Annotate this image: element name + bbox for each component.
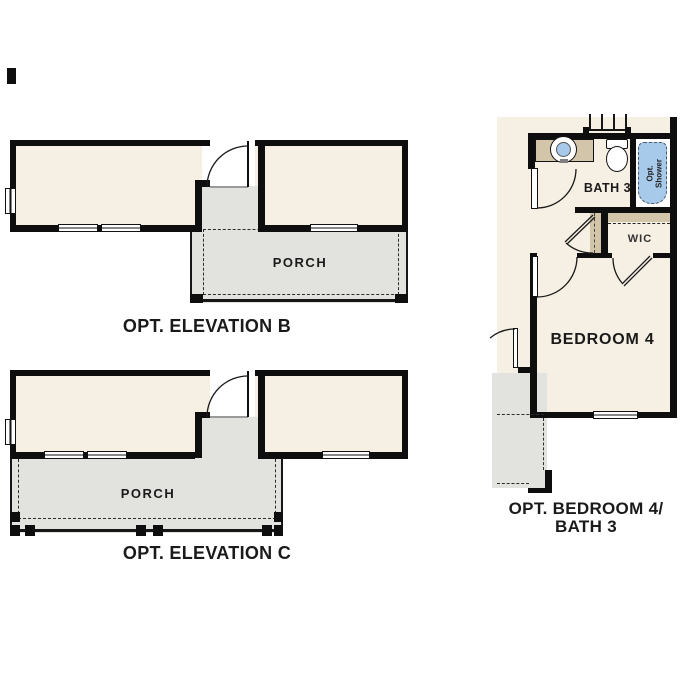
bedroom-window [593, 411, 638, 419]
floorplan-options-sheet: PORCH OPT. ELEVATION B PORCH OPT. ELEVAT… [0, 0, 687, 687]
elevation-b-recess-step-wall [195, 180, 210, 187]
bedroom-label: BEDROOM 4 [535, 331, 670, 349]
bedroom-top-wall-east [653, 253, 677, 258]
elevation-b-right-wall [402, 140, 408, 232]
elevation-c-porch-post [10, 525, 20, 536]
elevation-b-left-wall [10, 140, 16, 232]
shower-label: Opt. Shower [640, 143, 669, 205]
bedroom4-caption: OPT. BEDROOM 4/ BATH 3 [490, 500, 682, 536]
wic-west-wall [601, 212, 608, 253]
elevation-c-left-window [5, 419, 16, 445]
patio-dashed-line [543, 418, 544, 470]
elevation-b-caption: OPT. ELEVATION B [0, 316, 414, 337]
bedroom4-patio [492, 373, 547, 488]
elevation-c-room-interior-left [10, 370, 210, 458]
elevation-b-porch-post-right [395, 294, 408, 303]
caption-line: BATH 3 [490, 518, 682, 536]
wic-label: WIC [610, 233, 670, 245]
elevation-b-window-3 [310, 224, 358, 232]
elevation-c-top-wall-right [255, 370, 408, 376]
hall-door-leaf-cropped [513, 328, 518, 368]
elevation-c-door-threshold [210, 416, 248, 418]
elevation-b-right-section-left-wall [258, 140, 265, 232]
elevation-c-window-3 [322, 451, 370, 459]
wic-shelf [608, 213, 670, 222]
patio-corner-wall [528, 488, 552, 493]
bath-door-leaf [531, 168, 538, 209]
elevation-b-top-wall-right [255, 140, 408, 146]
elevation-c-recess-step-wall [195, 412, 210, 418]
elevation-b-room-interior-left [10, 140, 202, 232]
stairs-threshold [584, 129, 630, 131]
stairs [613, 114, 615, 129]
closet-rod-dashed [608, 223, 670, 224]
elevation-c-top-wall-left [10, 370, 210, 376]
elevation-b-porch-left-edge [190, 232, 192, 302]
elevation-c-right-section-left-wall [258, 370, 265, 458]
elevation-b-window-2 [101, 224, 141, 232]
elevation-b-door-leaf [247, 141, 249, 187]
hall-stub-wall [518, 367, 530, 373]
patio-corner-wall [545, 470, 552, 488]
bedroom4-right-wall [670, 117, 677, 418]
elevation-c-porch-post [10, 512, 20, 522]
sink-drain [560, 159, 568, 163]
elevation-c-right-wall [402, 370, 408, 458]
elevation-c-door-arc [207, 376, 248, 417]
caption-line: OPT. BEDROOM 4/ [490, 500, 682, 518]
elevation-b-left-window [5, 188, 16, 214]
elevation-b-porch-bottom-edge [190, 299, 408, 302]
cased-opening-dash [594, 213, 595, 253]
elevation-b-room-interior-right [255, 140, 408, 232]
elevation-c-porch-post [274, 512, 283, 522]
elevation-b-recess-side-wall [195, 180, 202, 232]
bedroom-top-wall-mid [577, 253, 612, 258]
sink-basin [556, 142, 571, 157]
elevation-c-entry-porch [202, 417, 258, 459]
elevation-b-entry-porch [202, 186, 258, 229]
bath-west-wall [528, 133, 535, 169]
elevation-b-porch-right-edge [406, 232, 408, 302]
bedroom-door-leaf [532, 256, 538, 297]
toilet-bowl [606, 146, 628, 172]
elevation-c-porch-post [274, 525, 283, 536]
bath-label: BATH 3 [570, 181, 645, 195]
elevation-c-recess-side-wall [195, 412, 202, 458]
elevation-c-porch-post [25, 525, 35, 536]
elevation-c-porch-post [136, 525, 146, 536]
elevation-b-porch-post-left [190, 294, 203, 303]
elevation-c-door-leaf [247, 371, 249, 417]
elevation-b-door-threshold [210, 186, 248, 188]
elevation-b-top-wall-left [10, 140, 210, 146]
stairs [601, 114, 603, 129]
elevation-c-room-interior-right [255, 370, 408, 458]
patio-dashed-line [497, 414, 544, 415]
cropped-wall-fragment [7, 68, 16, 84]
elevation-c-caption: OPT. ELEVATION C [0, 543, 414, 564]
elevation-c-porch-post [153, 525, 163, 536]
elevation-b-door-arc [207, 146, 248, 187]
patio-dashed-line [497, 483, 529, 484]
elevation-c-porch-label: PORCH [88, 486, 208, 501]
stairs [589, 114, 591, 129]
elevation-c-window-2 [87, 451, 127, 459]
cased-opening [590, 213, 601, 253]
elevation-c-porch-post [262, 525, 272, 536]
elevation-b-window-1 [58, 224, 98, 232]
elevation-c-window-1 [44, 451, 84, 459]
elevation-b-porch-label: PORCH [240, 255, 360, 270]
elevation-c-porch-bottom-edge [10, 529, 283, 532]
